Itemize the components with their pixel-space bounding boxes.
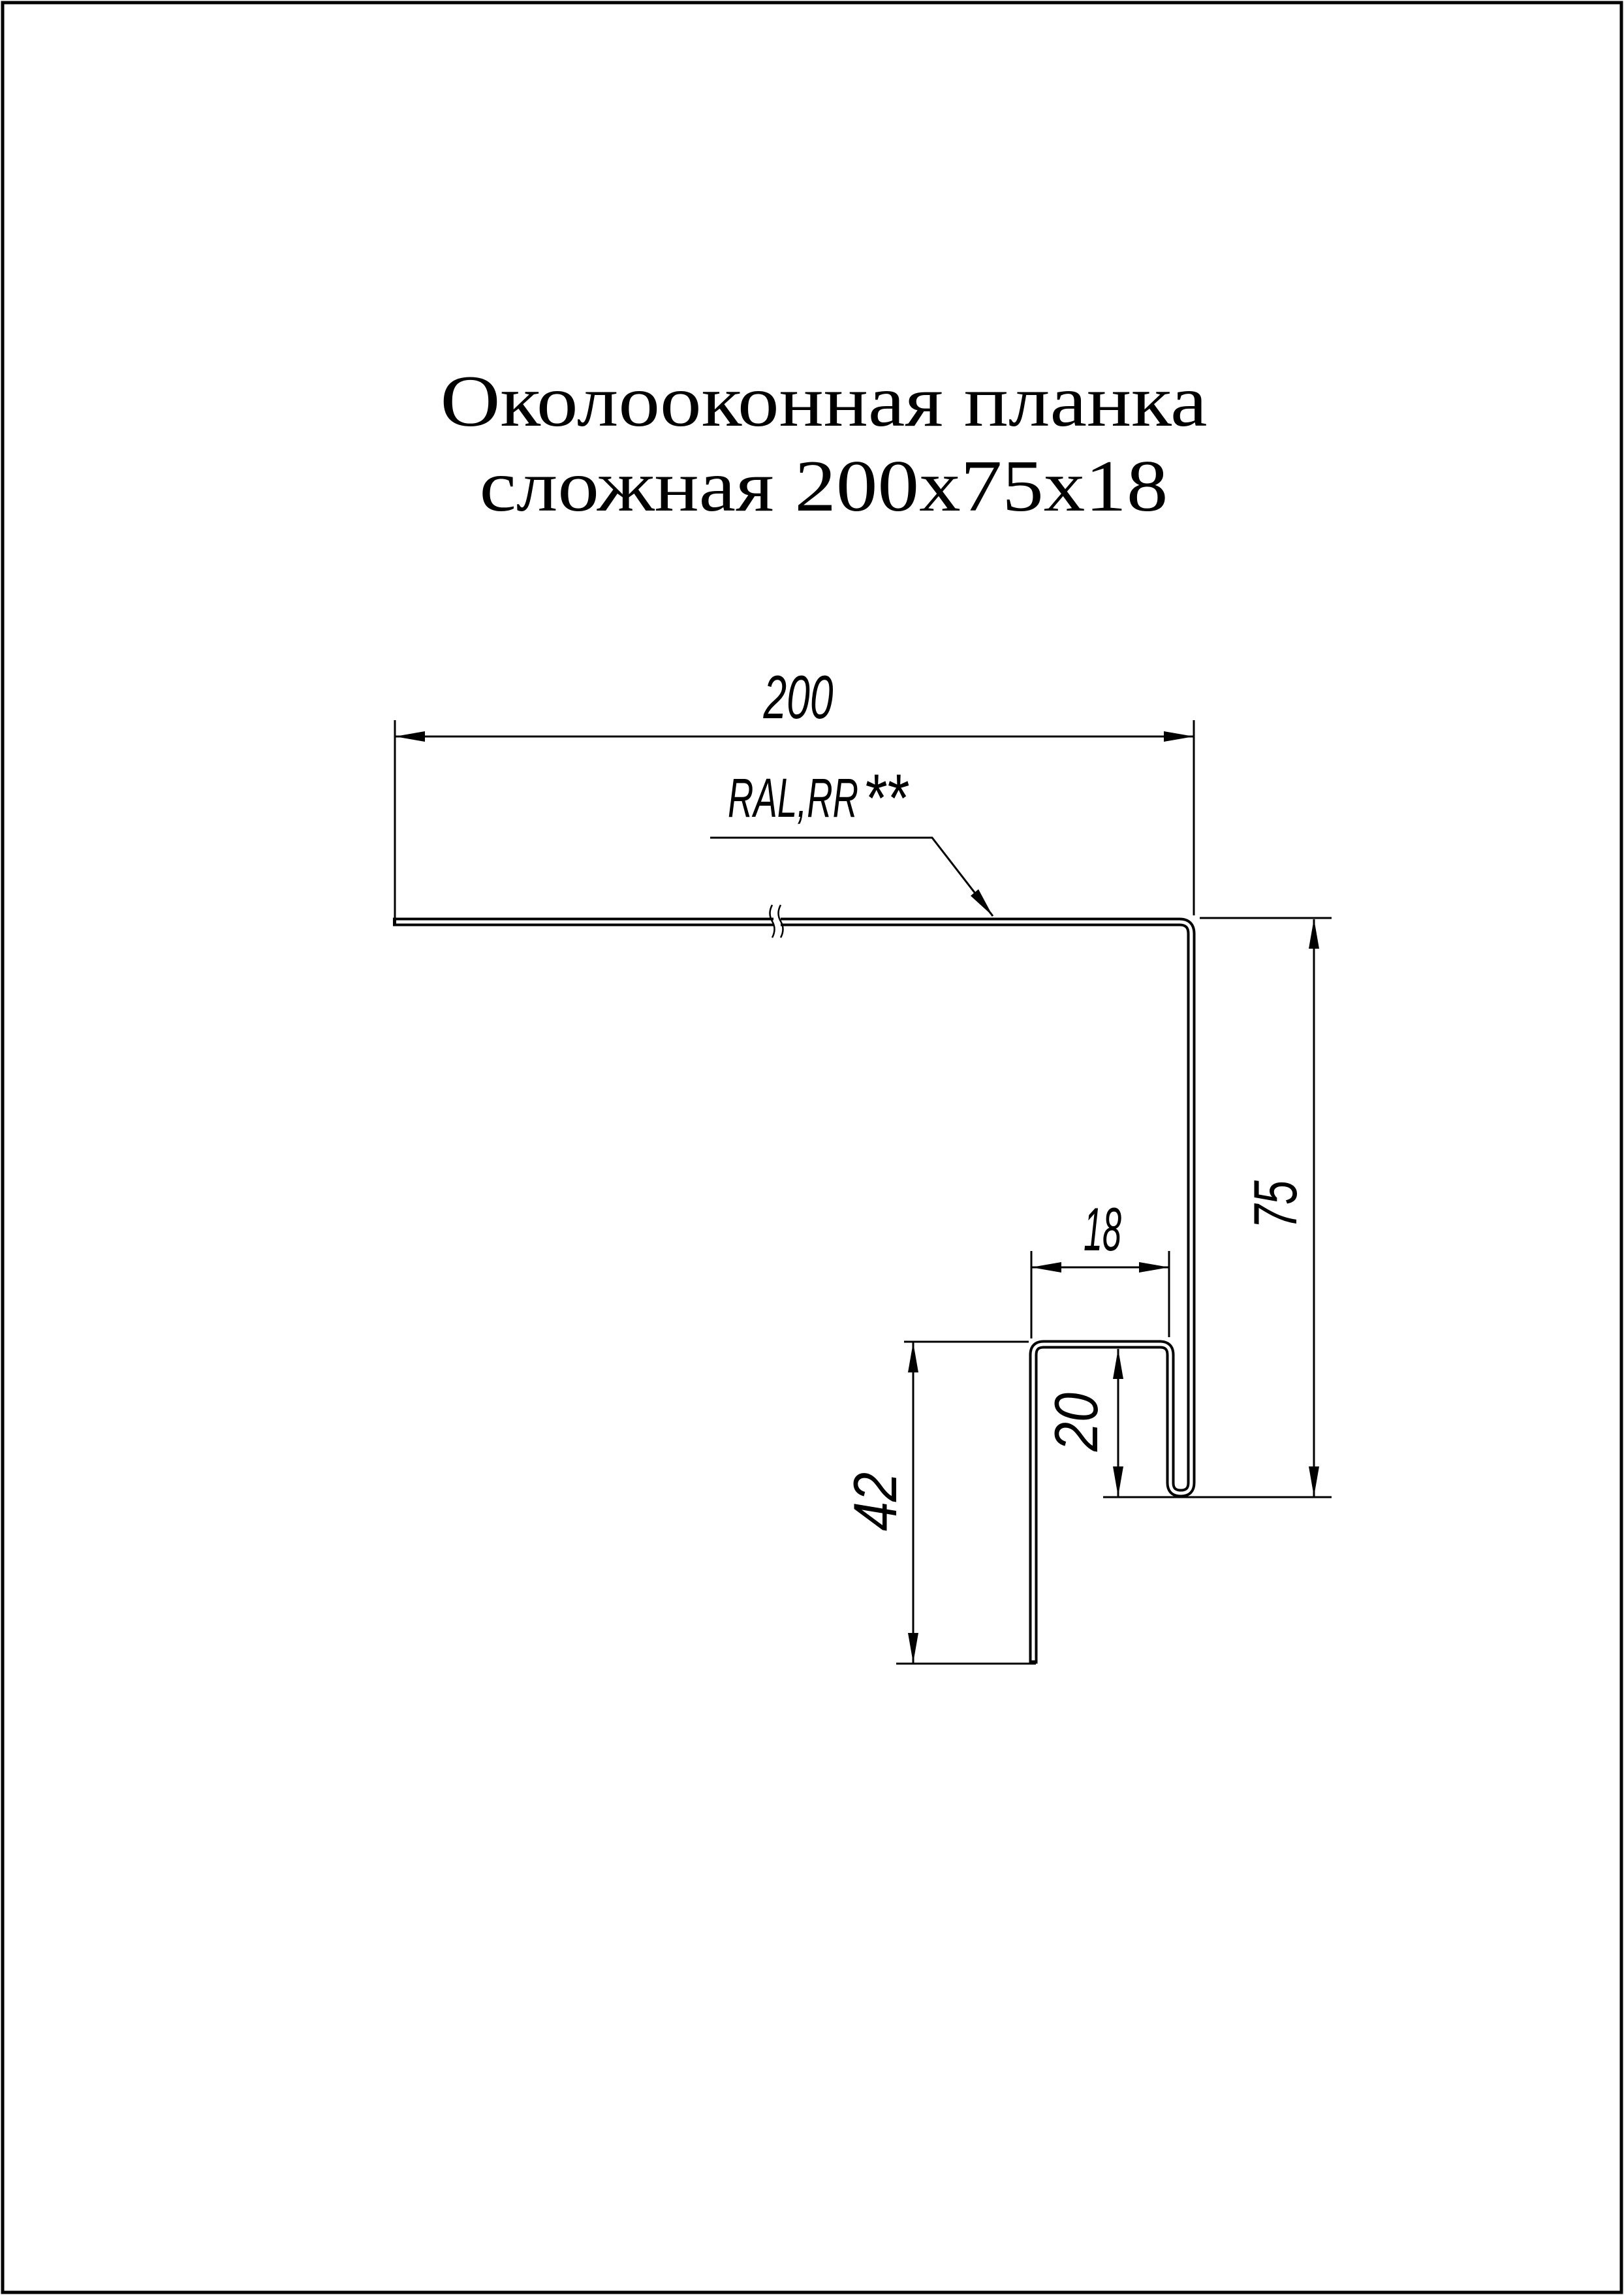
page-border [3,3,1621,2292]
arrowhead-left [1031,1262,1061,1273]
drawing-page: { "title": { "line1": "Околооконная план… [0,0,1624,2295]
material-label: RAL,RR [728,767,858,829]
arrowhead-bottom [1113,1466,1123,1496]
arrowhead-right [1164,731,1194,742]
arrowhead-right [1139,1262,1169,1273]
dim-value-42: 42 [841,1472,909,1531]
material-stars: ** [863,761,909,836]
drawing-title: Околооконная планка сложная 200х75х18 [441,361,1208,527]
arrowhead-top [1113,1349,1123,1379]
dimension-leg-height: 42 [841,1342,1036,1664]
profile-metal-contour [393,922,1191,1664]
technical-drawing-canvas: Околооконная планка сложная 200х75х18 RA… [0,0,1624,2295]
leader-line [710,838,993,916]
dim-value-200: 200 [763,663,834,731]
profile-metal-core [396,922,1191,1660]
dimension-right-height: 75 [1103,918,1332,1497]
dimension-hook-depth: 20 [1042,1349,1123,1496]
arrowhead-bottom [908,1633,918,1663]
profile-outline [393,905,1191,1664]
leader-arrowhead [971,889,993,916]
arrowhead-top [1309,919,1319,949]
material-callout: RAL,RR ** [710,761,993,916]
title-line-2: сложная 200х75х18 [480,446,1168,527]
arrowhead-left [395,731,425,742]
arrowhead-top [908,1342,918,1372]
dim-value-75: 75 [1241,1180,1309,1229]
arrowhead-bottom [1309,1466,1319,1496]
dimension-shelf-width: 18 [1031,1195,1169,1338]
break-symbol [770,905,783,938]
dim-value-18: 18 [1084,1195,1121,1263]
dim-value-20: 20 [1042,1393,1110,1452]
title-line-1: Околооконная планка [441,361,1208,442]
